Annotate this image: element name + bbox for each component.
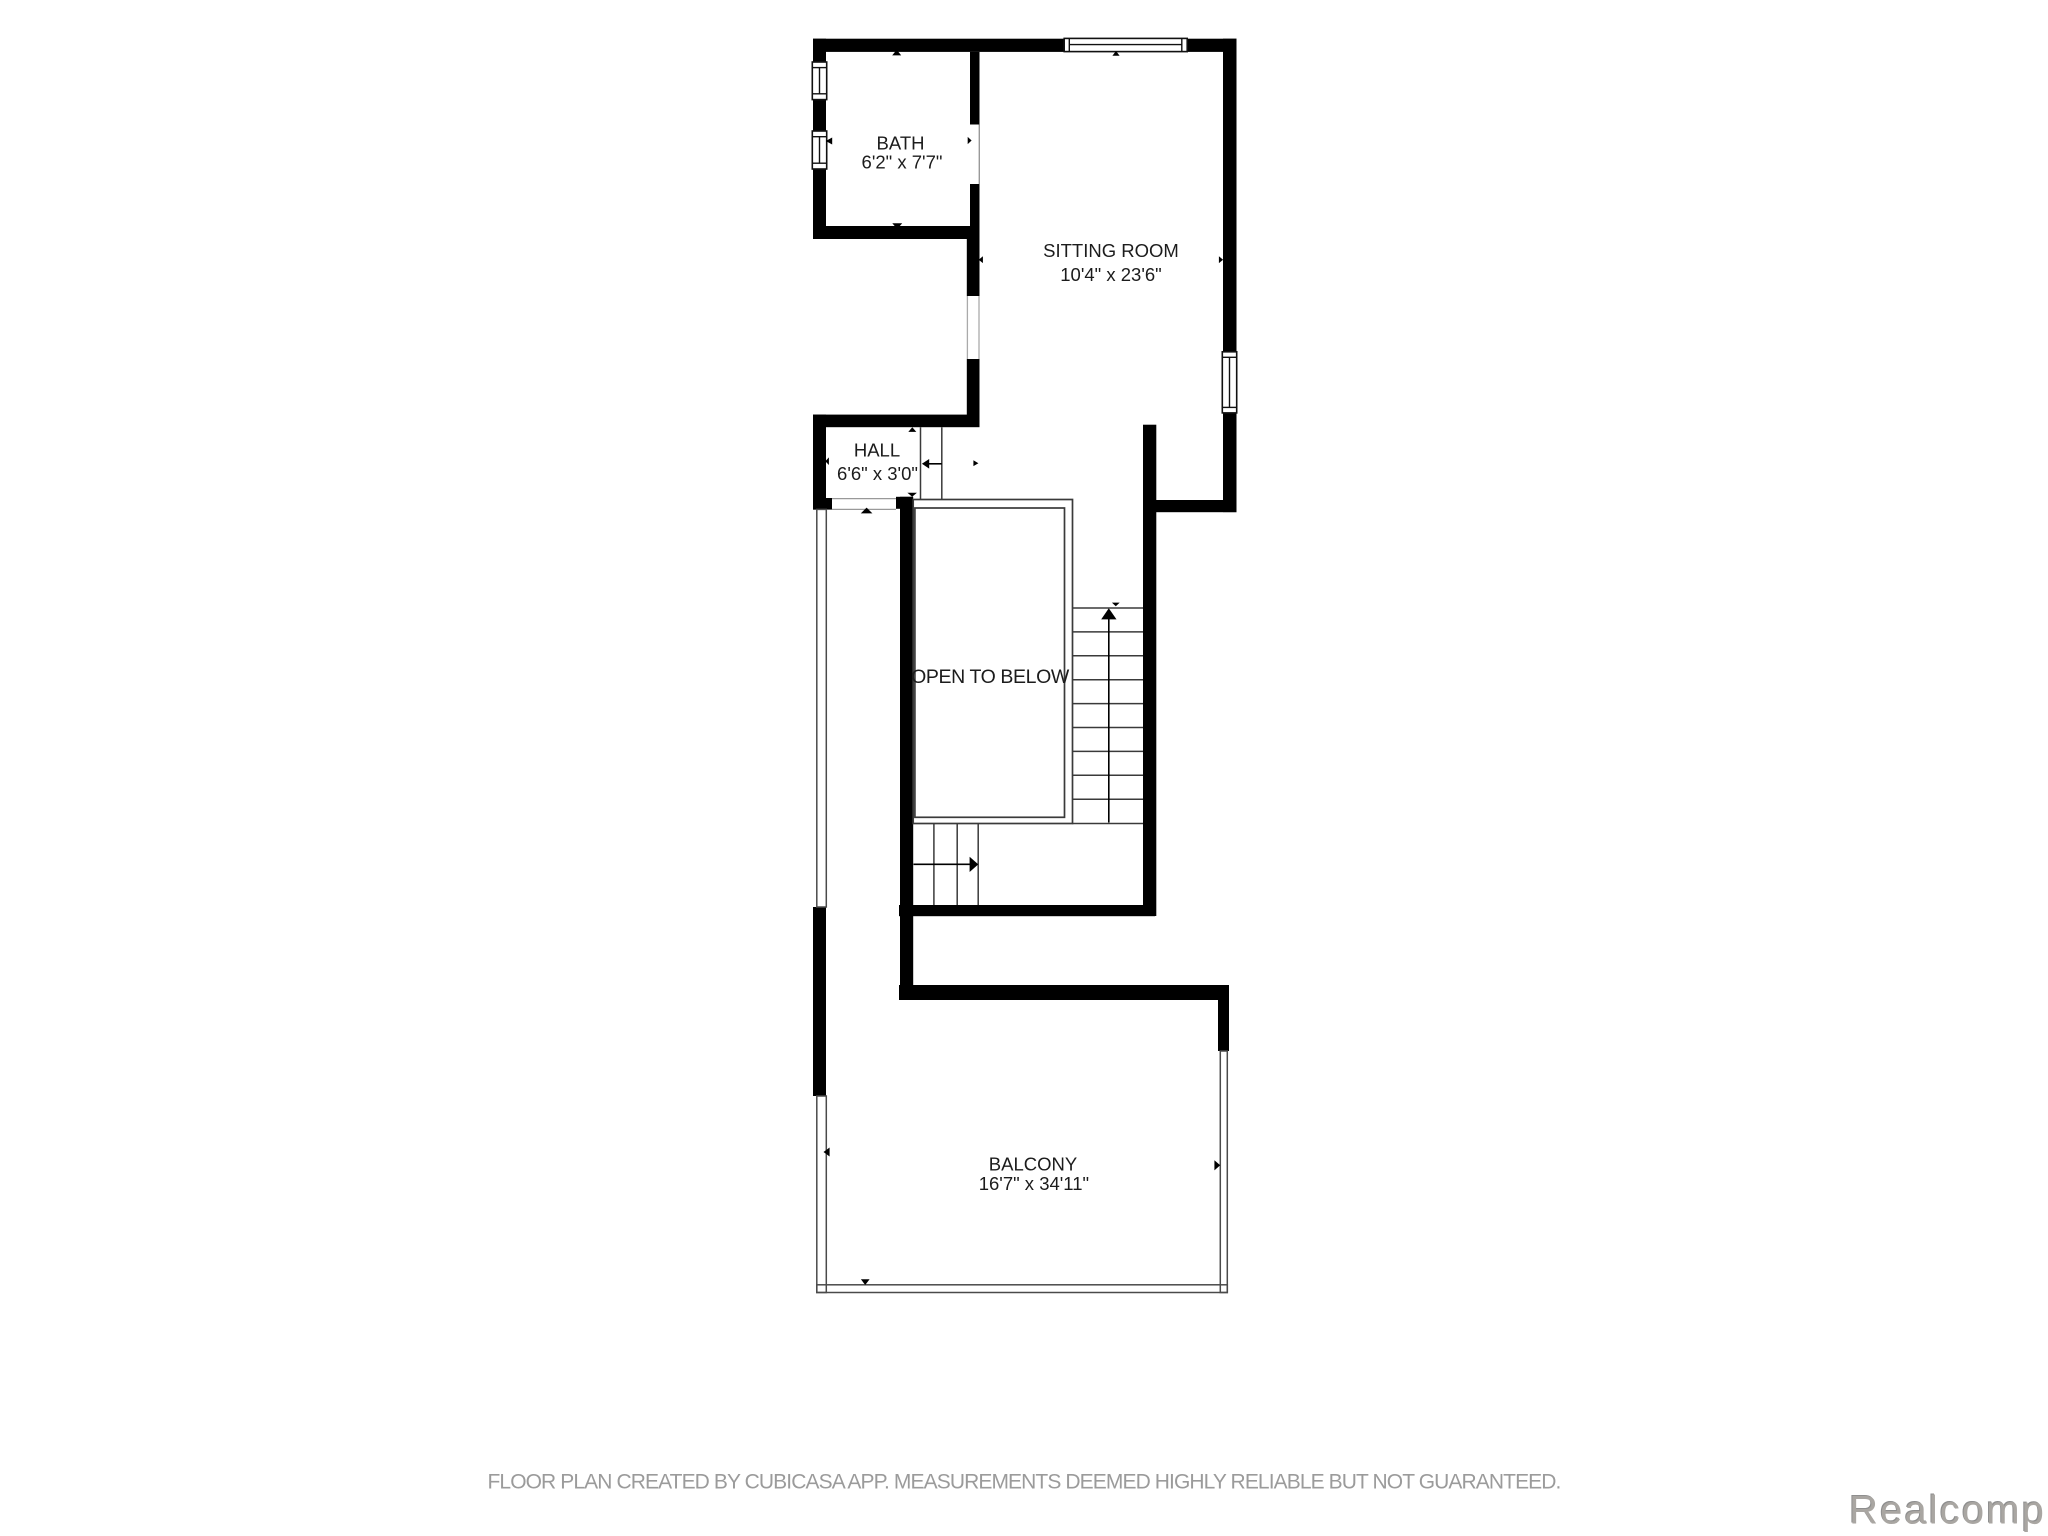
svg-text:SITTING ROOM: SITTING ROOM	[1043, 240, 1179, 261]
svg-text:16'7" x 34'11": 16'7" x 34'11"	[979, 1173, 1089, 1194]
svg-text:Realcomp: Realcomp	[1849, 1489, 2046, 1533]
svg-text:BALCONY: BALCONY	[989, 1153, 1077, 1174]
svg-text:FLOOR PLAN CREATED BY CUBICASA: FLOOR PLAN CREATED BY CUBICASA APP. MEAS…	[487, 1471, 1560, 1494]
svg-text:OPEN TO BELOW: OPEN TO BELOW	[911, 666, 1070, 688]
svg-text:6'6" x 3'0": 6'6" x 3'0"	[837, 463, 918, 484]
svg-text:6'2" x 7'7": 6'2" x 7'7"	[862, 151, 943, 172]
svg-text:HALL: HALL	[854, 440, 900, 461]
svg-text:10'4" x 23'6": 10'4" x 23'6"	[1060, 264, 1161, 285]
